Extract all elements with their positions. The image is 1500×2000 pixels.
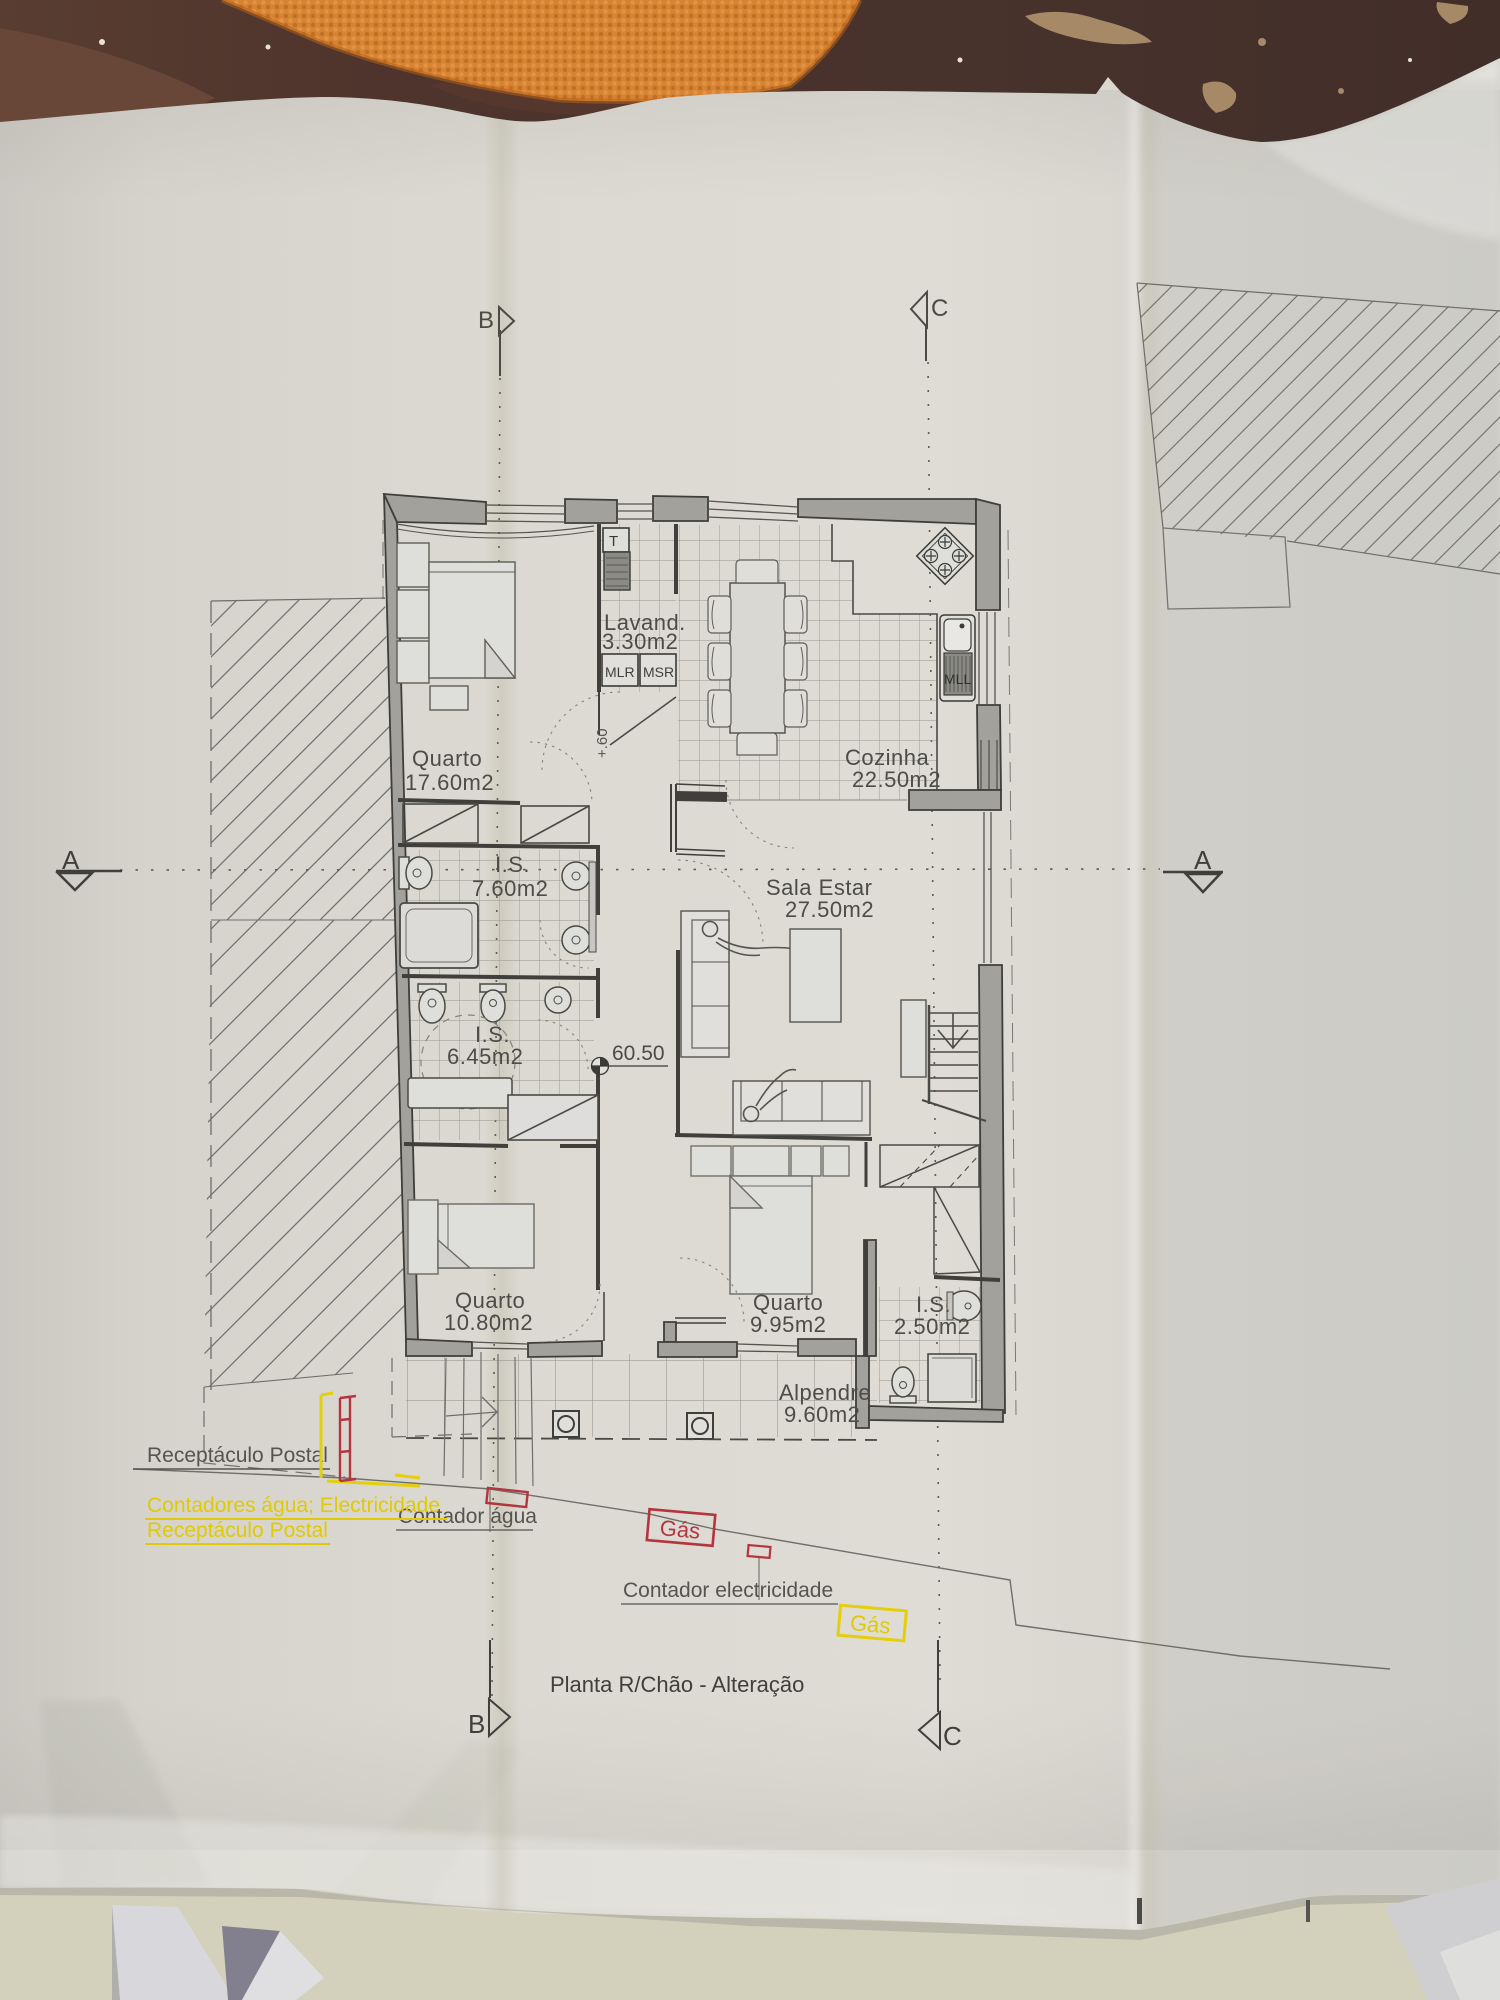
svg-text:22.50m2: 22.50m2 <box>852 767 941 792</box>
svg-text:9.60m2: 9.60m2 <box>784 1402 860 1427</box>
svg-text:MSR: MSR <box>643 664 674 680</box>
svg-text:9.95m2: 9.95m2 <box>750 1312 826 1337</box>
svg-text:Receptáculo Postal: Receptáculo Postal <box>147 1519 328 1542</box>
svg-text:Planta R/Chão - Alteração: Planta R/Chão - Alteração <box>550 1672 804 1697</box>
svg-text:Gás: Gás <box>659 1515 701 1543</box>
svg-text:Contador electricidade: Contador electricidade <box>623 1579 833 1602</box>
svg-text:Gás: Gás <box>849 1610 891 1638</box>
svg-text:A: A <box>62 845 80 875</box>
svg-text:C: C <box>943 1721 962 1751</box>
svg-text:2.50m2: 2.50m2 <box>894 1314 970 1339</box>
svg-text:B: B <box>468 1709 485 1739</box>
svg-text:10.80m2: 10.80m2 <box>444 1310 533 1335</box>
svg-text:Contadores água; Electricida: Contadores água; Electricidade <box>147 1494 440 1517</box>
svg-text:Quarto: Quarto <box>412 746 482 771</box>
svg-text:3.30m2: 3.30m2 <box>602 629 678 654</box>
svg-text:6.45m2: 6.45m2 <box>447 1044 523 1069</box>
svg-text:MLR: MLR <box>605 664 635 680</box>
svg-text:I.S.: I.S. <box>495 852 530 877</box>
svg-text:Receptáculo Postal: Receptáculo Postal <box>147 1444 328 1467</box>
svg-text:27.50m2: 27.50m2 <box>785 897 874 922</box>
svg-text:+.60: +.60 <box>594 728 611 758</box>
svg-text:MLL: MLL <box>944 671 971 687</box>
svg-text:T: T <box>609 533 618 550</box>
svg-text:C: C <box>931 295 948 322</box>
svg-text:60.50: 60.50 <box>612 1042 665 1065</box>
svg-text:A: A <box>1194 845 1212 875</box>
svg-text:17.60m2: 17.60m2 <box>405 770 494 795</box>
svg-text:7.60m2: 7.60m2 <box>472 876 548 901</box>
svg-text:B: B <box>478 307 494 334</box>
